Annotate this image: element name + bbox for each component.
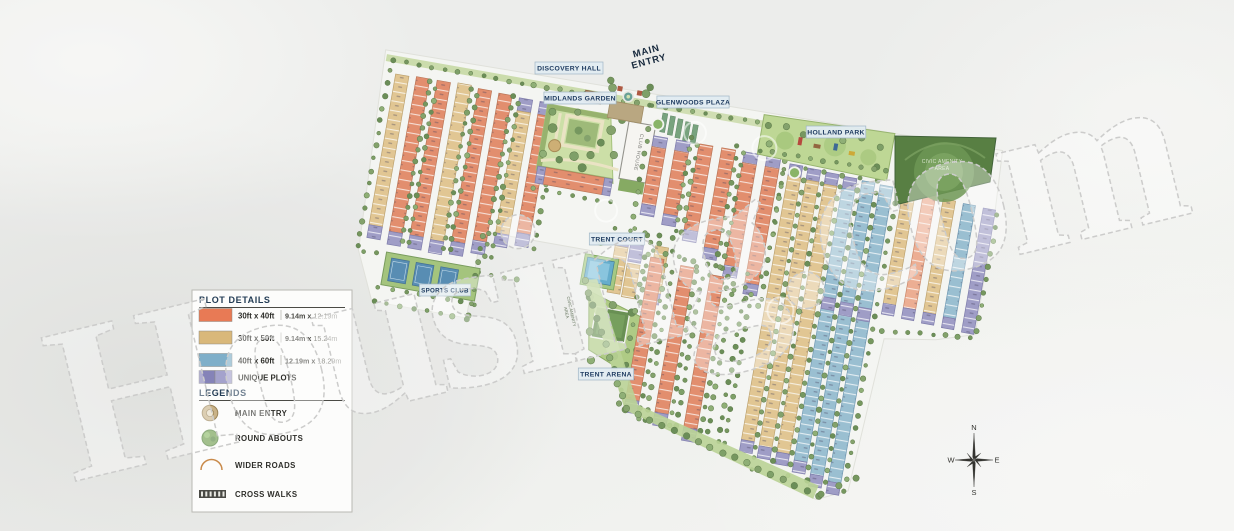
svg-text:N: N xyxy=(971,423,976,432)
svg-text:GLENWOODS PLAZA: GLENWOODS PLAZA xyxy=(656,100,730,107)
svg-text:S: S xyxy=(971,488,976,497)
svg-text:W: W xyxy=(947,456,955,465)
svg-text:CROSS WALKS: CROSS WALKS xyxy=(235,490,297,499)
svg-text:E: E xyxy=(994,456,999,465)
svg-text:MIDLANDS GARDEN: MIDLANDS GARDEN xyxy=(544,96,616,103)
svg-text:DISCOVERY HALL: DISCOVERY HALL xyxy=(537,66,601,73)
